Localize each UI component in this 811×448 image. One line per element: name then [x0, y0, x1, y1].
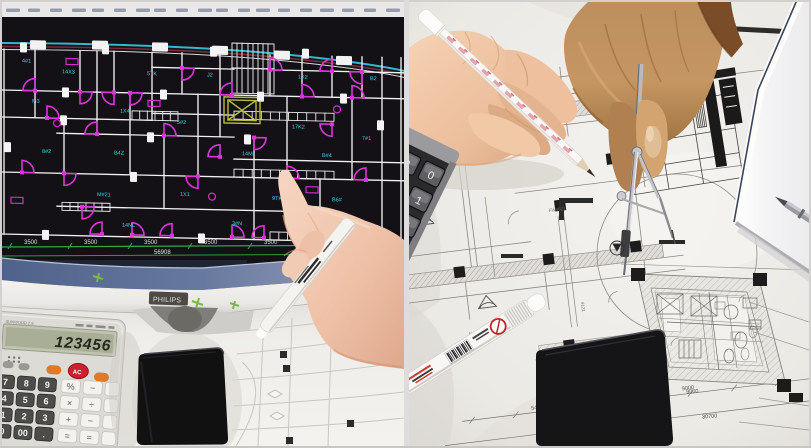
svg-text:B6#: B6# [332, 197, 343, 203]
svg-text:7#1: 7#1 [362, 136, 371, 142]
svg-text:3500: 3500 [264, 240, 278, 246]
svg-text:%: % [66, 381, 75, 392]
svg-text:4#1: 4#1 [22, 58, 31, 64]
svg-text:M#21: M#21 [97, 192, 111, 198]
svg-text:=: = [64, 431, 70, 441]
svg-text:3500: 3500 [24, 240, 38, 246]
svg-text:8: 8 [23, 378, 29, 388]
svg-text:B2: B2 [370, 76, 377, 82]
svg-text:6: 6 [43, 396, 49, 406]
svg-text:1X1: 1X1 [180, 192, 190, 198]
svg-text:9000: 9000 [686, 389, 699, 396]
svg-text:5#2: 5#2 [177, 120, 186, 126]
svg-text:AC: AC [72, 370, 82, 377]
svg-text:1X2: 1X2 [298, 75, 308, 81]
svg-text:2: 2 [21, 411, 27, 421]
svg-text:17K2: 17K2 [292, 124, 305, 130]
svg-text:14NL: 14NL [122, 223, 135, 229]
svg-text:B4Z: B4Z [114, 150, 125, 156]
svg-text:3#N: 3#N [232, 221, 242, 227]
svg-text:PHILIPS: PHILIPS [153, 296, 182, 304]
svg-text:5TK: 5TK [147, 71, 157, 77]
svg-text:3500: 3500 [144, 240, 158, 246]
svg-text:4: 4 [2, 393, 7, 403]
svg-text:3500: 3500 [204, 240, 218, 246]
svg-text:M3: M3 [32, 99, 40, 105]
svg-text:÷: ÷ [89, 399, 95, 409]
svg-text:8#2: 8#2 [42, 149, 51, 155]
svg-text:B#4: B#4 [322, 153, 332, 159]
svg-text:1: 1 [2, 410, 6, 420]
svg-text:×: × [67, 398, 73, 408]
svg-text:+: + [65, 414, 71, 424]
svg-text:9: 9 [44, 380, 50, 390]
svg-text:J2: J2 [207, 73, 213, 79]
svg-text:14X3: 14X3 [62, 69, 75, 75]
svg-text:1X4: 1X4 [120, 109, 130, 115]
svg-text:30700: 30700 [702, 413, 718, 420]
svg-text:=: = [86, 432, 92, 442]
svg-text:7: 7 [3, 377, 9, 387]
svg-text:5: 5 [22, 395, 28, 405]
svg-text:56908: 56908 [154, 250, 171, 256]
svg-text:−: − [87, 416, 93, 426]
svg-text:3500: 3500 [84, 240, 98, 246]
svg-text:−: − [90, 383, 96, 393]
svg-text:14M: 14M [242, 151, 253, 157]
svg-text:3: 3 [42, 413, 48, 423]
svg-text:00: 00 [18, 427, 29, 438]
